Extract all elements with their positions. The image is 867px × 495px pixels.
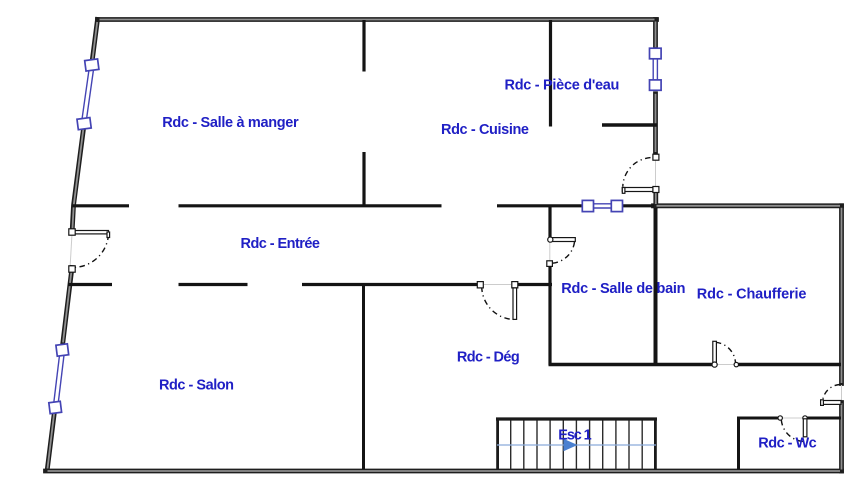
svg-text:Rdc - Wc: Rdc - Wc <box>758 435 816 451</box>
svg-text:Rdc - Pièce d'eau: Rdc - Pièce d'eau <box>505 78 620 94</box>
svg-text:Rdc - Cuisine: Rdc - Cuisine <box>441 122 529 138</box>
svg-text:Esc 1: Esc 1 <box>558 428 591 444</box>
svg-text:Rdc - Entrée: Rdc - Entrée <box>241 236 321 252</box>
svg-text:Rdc - Salle à manger: Rdc - Salle à manger <box>162 115 299 131</box>
svg-text:Rdc - Dég: Rdc - Dég <box>457 349 520 365</box>
svg-text:Rdc - Salon: Rdc - Salon <box>159 378 234 394</box>
svg-text:Rdc - Chaufferie: Rdc - Chaufferie <box>697 287 807 303</box>
svg-text:Rdc - Salle de bain: Rdc - Salle de bain <box>561 281 685 297</box>
